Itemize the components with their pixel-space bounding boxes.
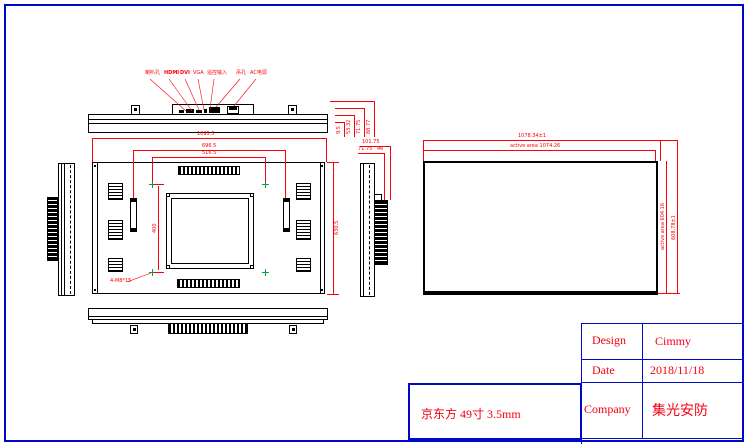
dimension-line (335, 108, 364, 109)
dimension-line (344, 122, 345, 137)
side-vent (296, 258, 311, 272)
title-block-line (581, 382, 742, 383)
extension-line (660, 140, 661, 161)
side-vent (108, 220, 123, 240)
drawing-line (70, 165, 71, 294)
vent-grille (168, 323, 248, 334)
extension-line (660, 140, 678, 141)
mount-ear-hole (134, 108, 137, 111)
port-label: 喇叭孔 (145, 71, 160, 76)
company-label: Company (584, 402, 631, 417)
extension-line (384, 153, 385, 200)
port-leader-lines (140, 77, 265, 117)
dimension-line (360, 146, 391, 147)
dimension-line (92, 138, 327, 139)
dimension-line (666, 161, 667, 293)
extension-line (327, 294, 339, 295)
company-value: 集光安防 (652, 400, 708, 420)
port-label: AC电源 (250, 71, 267, 76)
corner-screw (321, 289, 323, 291)
dimension-label: 696.5 (202, 144, 216, 149)
cad-drawing-sheet: 喇叭孔 HDMI DVI VGA 遥控输入 吊孔 AC电源 9.5 53 (0, 0, 748, 448)
dimension-line (335, 122, 344, 123)
dimension-label: 608.78±1 (672, 215, 677, 240)
date-value: 2018/11/18 (650, 363, 704, 378)
date-label: Date (592, 363, 615, 378)
vent-grille-bottom (177, 279, 240, 288)
vent-grille-top (178, 166, 240, 175)
handle-cap (131, 199, 136, 202)
dimension-line (364, 108, 365, 137)
mount-hole-marker (262, 269, 269, 276)
corner-screw (94, 289, 96, 291)
service-window-inner (171, 198, 249, 264)
product-label-box: 京东方 49寸 3.5mm (408, 383, 582, 440)
mount-ear-hole (133, 328, 136, 331)
corner-screw (94, 165, 96, 167)
dimension-line (152, 157, 266, 158)
drawing-line (363, 163, 364, 297)
dimension-line (158, 186, 159, 270)
dimension-line (677, 140, 678, 293)
mount-hole-marker (262, 181, 269, 188)
dimension-label: 400 (153, 223, 158, 233)
port-label: HDMI (164, 71, 179, 76)
dimension-line (354, 115, 355, 137)
dimension-label: 516.5 (202, 151, 216, 156)
dimension-line (423, 140, 661, 141)
dimension-label: active area 604.16 (661, 203, 666, 250)
design-value: Cimmy (655, 334, 691, 349)
extension-line (655, 150, 656, 161)
title-block-line (642, 323, 643, 438)
drawing-line (61, 163, 62, 296)
extension-line (265, 157, 266, 182)
dimension-label: 71.75 (358, 147, 372, 152)
drawing-line (89, 123, 327, 124)
side-vent (108, 258, 123, 272)
mount-ear-hole (291, 108, 294, 111)
dimension-label: active area 1074.26 (510, 144, 560, 149)
extension-line (133, 150, 134, 198)
extension-line (390, 146, 391, 200)
extension-line (152, 157, 153, 182)
port-label: 吊孔 (236, 71, 246, 76)
window-corner (166, 193, 170, 197)
mount-ear-hole (292, 328, 295, 331)
dimension-label: 9.5 (337, 126, 342, 134)
dimension-label: 630.5 (335, 221, 340, 235)
dimension-line (330, 101, 374, 102)
title-block-line (581, 359, 742, 360)
extension-line (658, 293, 680, 294)
dimension-line (358, 153, 385, 154)
handle-bracket (283, 198, 290, 232)
port-label: VGA (193, 71, 204, 76)
extension-line (285, 150, 286, 198)
handle-cap (284, 228, 289, 231)
extension-line (327, 162, 339, 163)
window-corner (166, 265, 170, 269)
side-vent (108, 183, 123, 200)
drawing-line (89, 316, 327, 317)
title-block-line (581, 323, 742, 324)
mount-note-leader (124, 268, 156, 286)
drawing-line (320, 162, 321, 294)
product-label: 京东方 49寸 3.5mm (421, 405, 521, 422)
extension-line (92, 138, 93, 162)
handle-cap (131, 228, 136, 231)
port-label: 遥控输入 (207, 71, 227, 76)
design-label: Design (592, 333, 626, 348)
extension-line (153, 184, 164, 185)
dimension-label: 46 (377, 147, 383, 152)
extension-line (326, 138, 327, 162)
drawing-line (64, 163, 65, 296)
side-vent (296, 183, 311, 200)
dimension-label: 71.75 (357, 120, 362, 134)
dimension-line (423, 150, 655, 151)
screen-outline (423, 161, 658, 295)
drawing-line (369, 165, 370, 295)
dimension-label: 1095.5 (197, 132, 215, 137)
window-corner (250, 193, 254, 197)
handle-cap (284, 199, 289, 202)
side-vent (296, 220, 311, 240)
connector-block (374, 200, 388, 265)
dimension-label: 101.75 (362, 140, 380, 145)
dimension-label: 1078.34±1 (518, 134, 546, 139)
dimension-label: 53.32 (347, 120, 352, 134)
handle-bracket (130, 198, 137, 232)
drawing-line (97, 162, 98, 294)
title-block-line (581, 438, 742, 439)
dimension-label: 88.77 (367, 120, 372, 134)
port-label: DVI (180, 71, 190, 76)
connector-block (47, 197, 58, 261)
dimension-line (374, 101, 375, 137)
dimension-line (335, 115, 354, 116)
corner-screw (321, 165, 323, 167)
window-corner (250, 265, 254, 269)
